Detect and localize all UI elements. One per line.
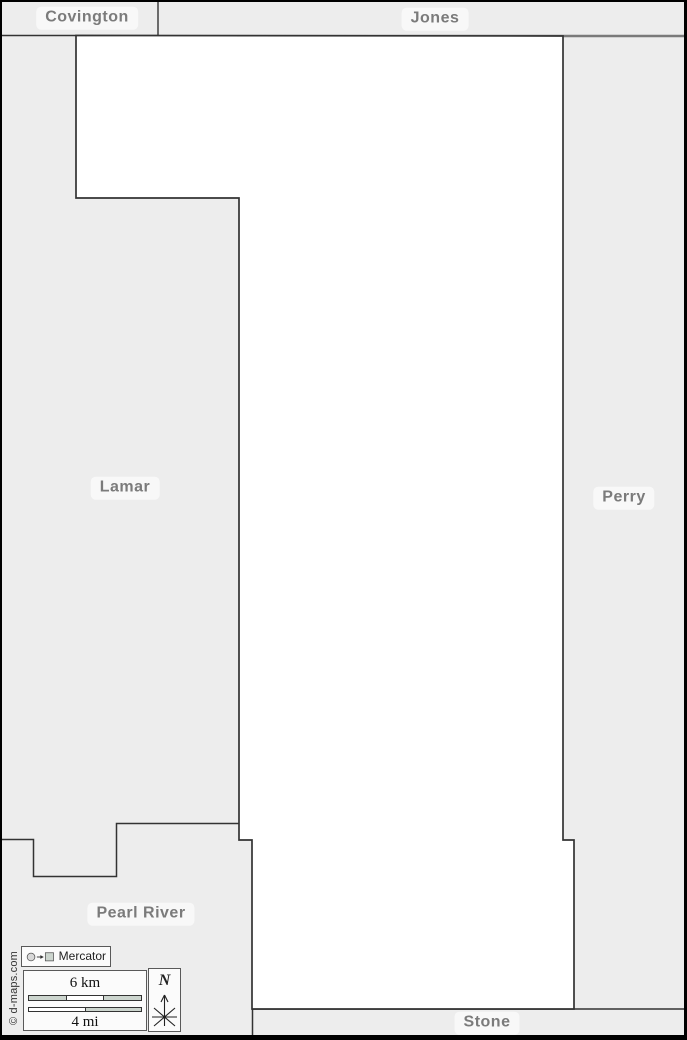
flat-map-icon bbox=[45, 952, 53, 960]
scale-segment bbox=[103, 996, 141, 1000]
map-frame-left bbox=[0, 0, 2, 1040]
region-label-covington: Covington bbox=[36, 7, 138, 30]
map-frame-bottom bbox=[0, 1035, 687, 1040]
scale-bar-mi bbox=[28, 1007, 142, 1013]
scale-segment bbox=[85, 1008, 142, 1012]
scale-segment bbox=[29, 1008, 85, 1012]
map-svg bbox=[0, 0, 687, 1040]
scale-segment bbox=[29, 996, 66, 1000]
scale-bar-km bbox=[28, 995, 142, 1001]
scale-box: 6 km 4 mi bbox=[23, 970, 147, 1031]
region-label-lamar: Lamar bbox=[91, 477, 160, 500]
region-label-stone: Stone bbox=[455, 1012, 520, 1035]
map-frame-top bbox=[0, 0, 687, 2]
compass-rose-icon bbox=[150, 989, 179, 1029]
projection-box: Mercator bbox=[21, 946, 111, 967]
projection-icon bbox=[26, 950, 55, 964]
compass-north-label: N bbox=[159, 973, 171, 989]
region-label-perry: Perry bbox=[593, 487, 654, 510]
projection-name: Mercator bbox=[59, 950, 106, 963]
scale-segment bbox=[66, 996, 104, 1000]
region-label-jones: Jones bbox=[402, 8, 469, 31]
map-canvas: Covington Jones Lamar Perry Pearl River … bbox=[0, 0, 687, 1040]
arrow-head-icon bbox=[40, 955, 43, 959]
copyright-credit: © d-maps.com bbox=[8, 951, 20, 1025]
scale-mi-label: 4 mi bbox=[71, 1015, 98, 1030]
scale-km-label: 6 km bbox=[70, 976, 100, 991]
sphere-icon bbox=[27, 953, 35, 961]
region-label-pearl-river: Pearl River bbox=[87, 903, 194, 926]
compass-box: N bbox=[148, 968, 181, 1032]
